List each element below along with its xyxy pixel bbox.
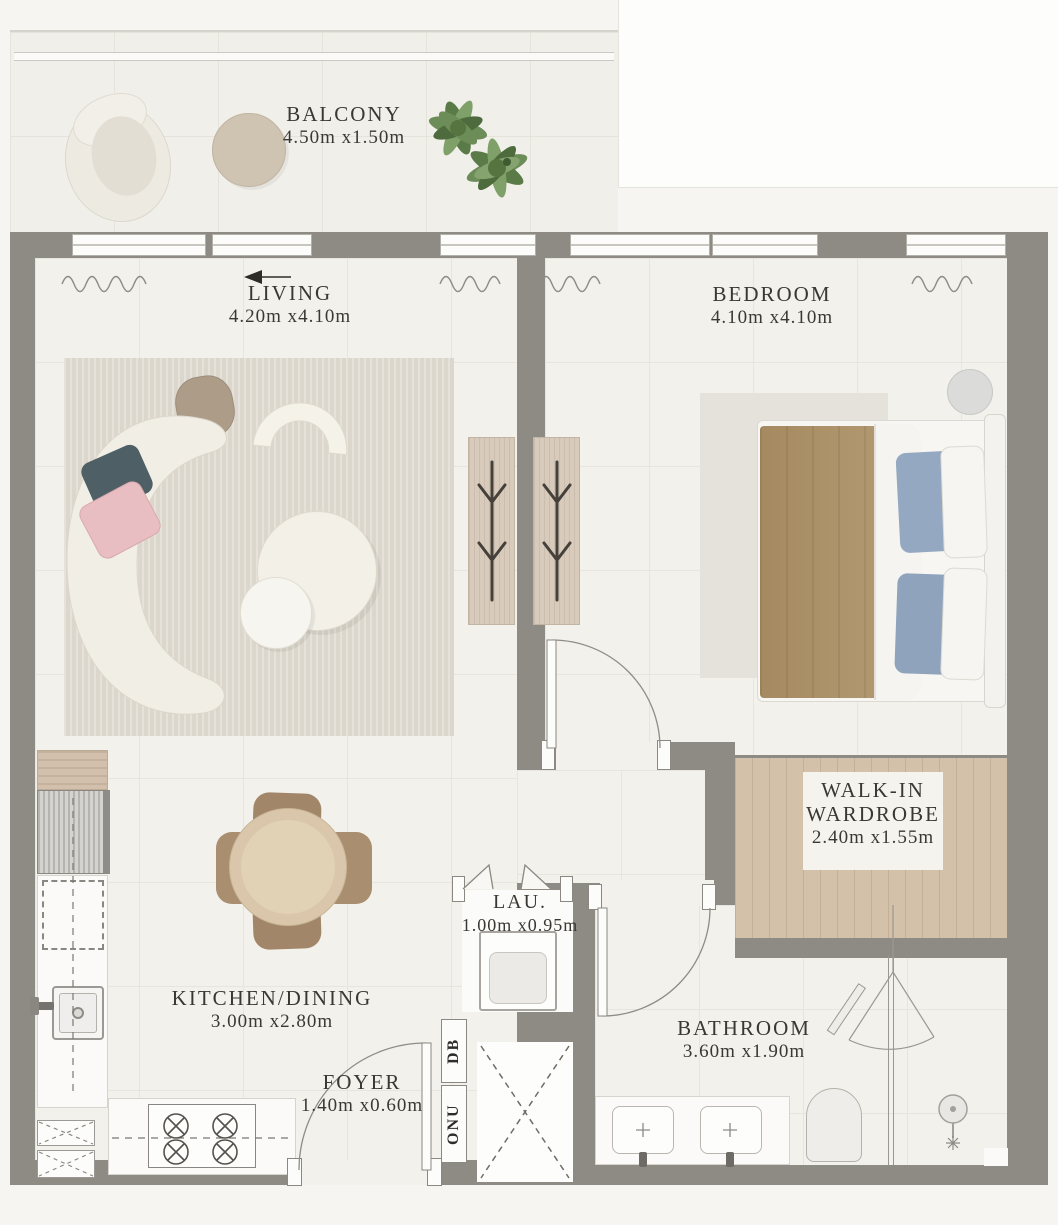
balcony-railing: [14, 52, 614, 61]
pillow-white-top: [940, 445, 988, 558]
room-dims: 4.20m x4.10m: [229, 305, 351, 329]
room-dims: 3.60m x1.90m: [677, 1040, 811, 1064]
room-name: BATHROOM: [677, 1016, 811, 1040]
room-dims: 3.00m x2.80m: [172, 1010, 373, 1034]
room-dims: 1.00m x0.95m: [462, 914, 579, 937]
room-name: LAU.: [462, 891, 579, 914]
room-name: BALCONY: [283, 102, 405, 126]
coffee-table-small: [240, 577, 312, 649]
db-slot: DB: [441, 1019, 467, 1083]
room-dims: 4.10m x4.10m: [711, 306, 833, 330]
pillow-white-bottom: [940, 567, 988, 680]
vanity-sink-right: [700, 1106, 762, 1154]
door-post: [427, 1158, 442, 1186]
window: [440, 234, 536, 256]
wardrobe-bottom-wall: [735, 938, 1007, 958]
window: [712, 234, 818, 256]
door-post: [702, 884, 716, 910]
onu-label: ONU: [445, 1103, 463, 1145]
living-label: LIVING 4.20m x4.10m: [229, 281, 351, 329]
balcony-side-table: [212, 113, 286, 187]
bathroom-door-opening: [600, 880, 714, 906]
nightstand-top: [947, 369, 993, 415]
kitchen-faucet-handle: [30, 997, 39, 1015]
kitchen-sink-drain: [72, 1007, 84, 1019]
room-name: KITCHEN/DINING: [172, 986, 373, 1010]
window: [906, 234, 1006, 256]
room-name: WALK-IN WARDROBE: [798, 778, 948, 826]
shaft: [477, 1042, 573, 1182]
foyer-label: FOYER 1.40m x0.60m: [301, 1070, 423, 1118]
kitchen-tall-cabinet: [37, 750, 108, 790]
window: [570, 234, 710, 256]
room-dims: 4.50m x1.50m: [283, 126, 405, 150]
living-rug: [64, 358, 454, 736]
room-name: FOYER: [301, 1070, 423, 1094]
window: [72, 234, 206, 256]
floor-plan: DB ONU: [0, 0, 1058, 1225]
door-post: [287, 1158, 302, 1186]
stove: [148, 1104, 256, 1168]
tv-cabinet-bedroom: [533, 437, 580, 625]
base-unit-x1: [37, 1120, 95, 1146]
vanity-sink-left: [612, 1106, 674, 1154]
bed-headboard: [984, 414, 1006, 708]
entry-opening: [299, 1160, 429, 1185]
bedroom-door-opening: [556, 742, 658, 770]
corridor-floor: [517, 770, 705, 883]
room-name: LIVING: [229, 281, 351, 305]
room-dims: 1.40m x0.60m: [301, 1094, 423, 1118]
wardrobe-label: WALK-IN WARDROBE 2.40m x1.55m: [798, 778, 948, 850]
washer-drum: [489, 952, 547, 1004]
kitchen-label: KITCHEN/DINING 3.00m x2.80m: [172, 986, 373, 1034]
laundry-label: LAU. 1.00m x0.95m: [462, 891, 579, 937]
shower-glass: [888, 956, 894, 1165]
bathroom-label: BATHROOM 3.60m x1.90m: [677, 1016, 811, 1064]
window: [212, 234, 312, 256]
door-post: [588, 884, 602, 910]
bed-blanket: [760, 426, 880, 698]
room-name: BEDROOM: [711, 282, 833, 306]
toilet: [806, 1088, 862, 1162]
exterior-area: [618, 0, 1058, 188]
room-dims: 2.40m x1.55m: [798, 826, 948, 850]
balcony-label: BALCONY 4.50m x1.50m: [283, 102, 405, 150]
shower-niche: [984, 1148, 1008, 1166]
bedroom-label: BEDROOM 4.10m x4.10m: [711, 282, 833, 330]
dining-table-top: [241, 820, 335, 914]
door-post: [657, 740, 671, 770]
onu-slot: ONU: [441, 1085, 467, 1163]
db-label: DB: [445, 1038, 463, 1064]
kitchen-upper-cabinet-dashed: [42, 880, 104, 950]
base-unit-x2: [37, 1150, 95, 1178]
tv-cabinet-living: [468, 437, 515, 625]
fridge: [37, 790, 110, 874]
door-post: [541, 740, 555, 770]
